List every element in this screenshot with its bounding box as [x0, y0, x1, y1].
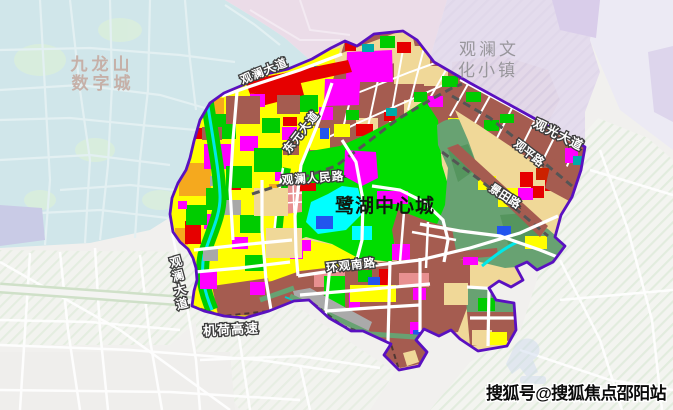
- svg-text:鹭湖中心城: 鹭湖中心城: [335, 194, 435, 217]
- svg-text:数字城: 数字城: [72, 73, 135, 93]
- svg-text:观澜文: 观澜文: [459, 40, 519, 59]
- svg-text:机荷高速: 机荷高速: [203, 321, 260, 339]
- svg-text:九龙山: 九龙山: [70, 54, 134, 74]
- svg-text:搜狐号@搜狐焦点邵阳站: 搜狐号@搜狐焦点邵阳站: [486, 383, 667, 403]
- svg-text:化小镇: 化小镇: [458, 61, 518, 80]
